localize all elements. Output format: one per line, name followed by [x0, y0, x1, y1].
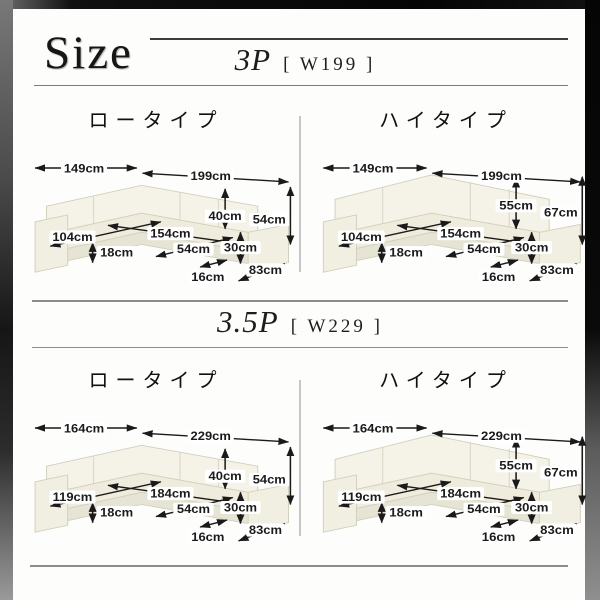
dim-width-left: 149cm [64, 162, 104, 175]
dim-back-height: 40cm [209, 210, 242, 223]
dim-arm-width: 16cm [191, 270, 224, 283]
seat-count-label: 3P [235, 42, 271, 77]
dim-width-right: 199cm [481, 170, 522, 183]
panel-3p-high: ハイタイプ 149cm 199cm 104cm 154cm 18cm 55cm … [300, 104, 592, 287]
dim-back-height: 55cm [499, 459, 533, 472]
dim-seat-height: 18cm [100, 506, 133, 519]
panel-35p-high: ハイタイプ 164cm 229cm 119cm 184cm 18cm 55cm … [300, 364, 592, 547]
panel-title: ハイタイプ [300, 104, 592, 133]
dim-back-height: 55cm [499, 199, 533, 212]
dim-width-left: 149cm [353, 162, 394, 175]
dim-seat-depth: 54cm [467, 503, 501, 516]
dim-width-left: 164cm [64, 422, 104, 435]
panel-title: ロータイプ [12, 364, 300, 393]
panel-3p-low: ロータイプ 149cm 199cm 104cm 154cm 18cm 40cm … [12, 104, 300, 287]
sofa-diagram: 164cm 229cm 119cm 184cm 18cm 55cm 54cm 6… [300, 395, 592, 547]
frame-border-top [0, 0, 600, 9]
dim-seat-depth: 54cm [177, 503, 210, 516]
page-title: Size [44, 26, 133, 80]
rule-below-3p [34, 85, 568, 86]
size-infographic: Size 3P [ W199 ] ロータイプ 149cm 199cm 104cm… [0, 0, 600, 600]
dim-depth-right: 83cm [249, 524, 282, 537]
sofa-diagram: 149cm 199cm 104cm 154cm 18cm 40cm 54cm 5… [12, 135, 300, 287]
dim-arm-width: 16cm [482, 531, 516, 544]
dim-arm-height: 30cm [515, 501, 549, 514]
dim-inner-width: 184cm [440, 487, 481, 500]
dim-back-height: 40cm [209, 470, 242, 483]
dim-depth-left: 119cm [341, 491, 381, 504]
overall-width-label: [ W229 ] [291, 316, 383, 337]
rule-below-35p [32, 347, 568, 348]
overall-width-label: [ W199 ] [283, 54, 375, 75]
dim-seat-height: 18cm [100, 246, 133, 259]
dim-total-height: 54cm [253, 473, 286, 486]
panel-title: ハイタイプ [300, 364, 592, 393]
sofa-diagram: 149cm 199cm 104cm 154cm 18cm 55cm 54cm 6… [300, 135, 592, 287]
dim-depth-right: 83cm [540, 524, 574, 537]
sofa-diagram: 164cm 229cm 119cm 184cm 18cm 40cm 54cm 5… [12, 395, 300, 547]
dim-width-right: 199cm [191, 170, 231, 183]
dim-width-right: 229cm [191, 430, 231, 443]
dim-depth-left: 104cm [341, 231, 382, 244]
rule-bottom [30, 565, 568, 567]
dim-depth-left: 104cm [52, 231, 92, 244]
dim-arm-height: 30cm [224, 241, 257, 254]
panel-35p-low: ロータイプ 164cm 229cm 119cm 184cm 18cm 40cm … [12, 364, 300, 547]
dim-arm-height: 30cm [515, 241, 549, 254]
dim-depth-right: 83cm [540, 264, 574, 277]
dim-width-left: 164cm [353, 422, 394, 435]
dim-inner-width: 184cm [150, 487, 190, 500]
rule-above-35p [32, 300, 568, 302]
dim-arm-width: 16cm [191, 530, 224, 543]
dim-arm-height: 30cm [224, 501, 257, 514]
panel-divider-top [299, 116, 301, 272]
dim-inner-width: 154cm [440, 227, 481, 240]
section-heading-3p: 3P [ W199 ] [155, 42, 455, 78]
dim-total-height: 67cm [544, 206, 578, 219]
dim-depth-right: 83cm [249, 264, 282, 277]
section-heading-35p: 3.5P [ W229 ] [0, 304, 600, 340]
dim-inner-width: 154cm [150, 227, 190, 240]
rule-above-3p [150, 38, 568, 40]
dim-total-height: 54cm [253, 213, 286, 226]
dim-total-height: 67cm [544, 466, 578, 479]
dim-seat-depth: 54cm [177, 243, 210, 256]
panel-title: ロータイプ [12, 104, 300, 133]
dim-seat-height: 18cm [389, 506, 423, 519]
dim-seat-height: 18cm [389, 246, 423, 259]
dim-depth-left: 119cm [53, 491, 93, 504]
panel-divider-bottom [299, 380, 301, 536]
seat-count-label: 3.5P [217, 304, 279, 339]
dim-seat-depth: 54cm [467, 243, 501, 256]
dim-width-right: 229cm [481, 430, 522, 443]
dim-arm-width: 16cm [482, 271, 516, 284]
